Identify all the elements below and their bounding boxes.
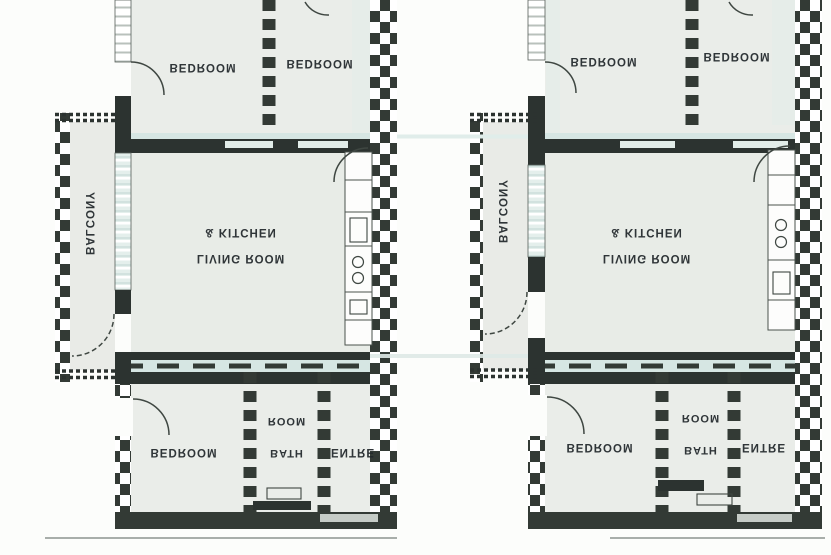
room-label-entre: ENTRE <box>331 446 375 458</box>
label-text: & KITCHEN <box>197 219 285 245</box>
wall-segment <box>115 372 370 384</box>
wall-segment <box>115 352 370 360</box>
wall-segment <box>115 356 131 372</box>
kitchen-counter <box>345 152 372 345</box>
room-bedroom-bottom <box>131 372 250 512</box>
label-text: ROOM <box>682 402 720 434</box>
room-label-living-kitchen: LIVING ROOM & KITCHEN <box>197 219 285 271</box>
room-bedroom-top-left <box>545 0 692 139</box>
window-strip <box>528 0 545 60</box>
exterior-wall <box>370 0 397 512</box>
balcony-wall <box>55 113 70 382</box>
label-text: ENTRE <box>742 441 786 453</box>
label-text: BEDROOM <box>286 57 353 69</box>
window-light-tint <box>546 0 560 133</box>
room-label-balcony: BALCONY <box>496 179 508 243</box>
window-segment <box>225 141 273 148</box>
wall-segment <box>115 96 131 153</box>
bath-vanity <box>253 501 311 510</box>
floor-plan-drawing <box>0 0 831 555</box>
label-text: BALCONY <box>83 191 95 255</box>
floor-plan-canvas: BEDROOM BEDROOM BALCONY LIVING ROOM & KI… <box>0 0 831 555</box>
label-text: BEDROOM <box>570 55 637 67</box>
window-segment <box>298 141 348 148</box>
entre-threshold <box>320 514 378 522</box>
label-text: BATH <box>682 434 720 466</box>
wall-segment <box>528 338 545 372</box>
balcony-wall <box>470 113 483 382</box>
kitchen-counter <box>768 150 795 330</box>
room-label-bath: BATH ROOM <box>268 405 306 469</box>
window-strip <box>115 153 131 290</box>
label-text: & KITCHEN <box>603 219 691 245</box>
label-text: LIVING ROOM <box>197 245 285 271</box>
entre-threshold <box>737 514 792 522</box>
label-text: BEDROOM <box>703 50 770 62</box>
room-label-bedroom: BEDROOM <box>566 441 633 453</box>
room-label-bedroom: BEDROOM <box>150 446 217 458</box>
room-entre <box>324 372 370 512</box>
room-label-bedroom: BEDROOM <box>570 55 637 67</box>
door-opening <box>113 398 133 436</box>
label-text: BEDROOM <box>566 441 633 453</box>
window-segment <box>620 141 675 148</box>
room-label-bedroom: BEDROOM <box>703 50 770 62</box>
window-band <box>131 133 397 139</box>
door-opening <box>526 395 547 436</box>
window-band <box>528 133 822 139</box>
label-text: BALCONY <box>496 179 508 243</box>
bath-vanity <box>658 480 704 491</box>
label-text: BATH <box>268 437 306 469</box>
label-text: ROOM <box>268 405 306 437</box>
wall-segment <box>528 352 795 360</box>
label-text: ENTRE <box>331 446 375 458</box>
wall-segment <box>528 257 545 292</box>
exterior-wall <box>795 0 822 512</box>
room-label-entre: ENTRE <box>742 441 786 453</box>
room-label-bath: BATH ROOM <box>682 402 720 466</box>
window-light-tint <box>772 0 795 125</box>
label-text: LIVING ROOM <box>603 245 691 271</box>
wall-segment <box>115 290 131 314</box>
label-text: BEDROOM <box>169 61 236 73</box>
label-text: BEDROOM <box>150 446 217 458</box>
wall-segment <box>528 96 545 165</box>
window-strip <box>115 0 131 62</box>
window-strip <box>528 165 545 257</box>
window-light-tint <box>352 0 370 133</box>
room-label-living-kitchen: LIVING ROOM & KITCHEN <box>603 219 691 271</box>
room-balcony <box>483 122 528 370</box>
room-label-bedroom: BEDROOM <box>169 61 236 73</box>
room-label-bedroom: BEDROOM <box>286 57 353 69</box>
room-label-balcony: BALCONY <box>83 191 95 255</box>
